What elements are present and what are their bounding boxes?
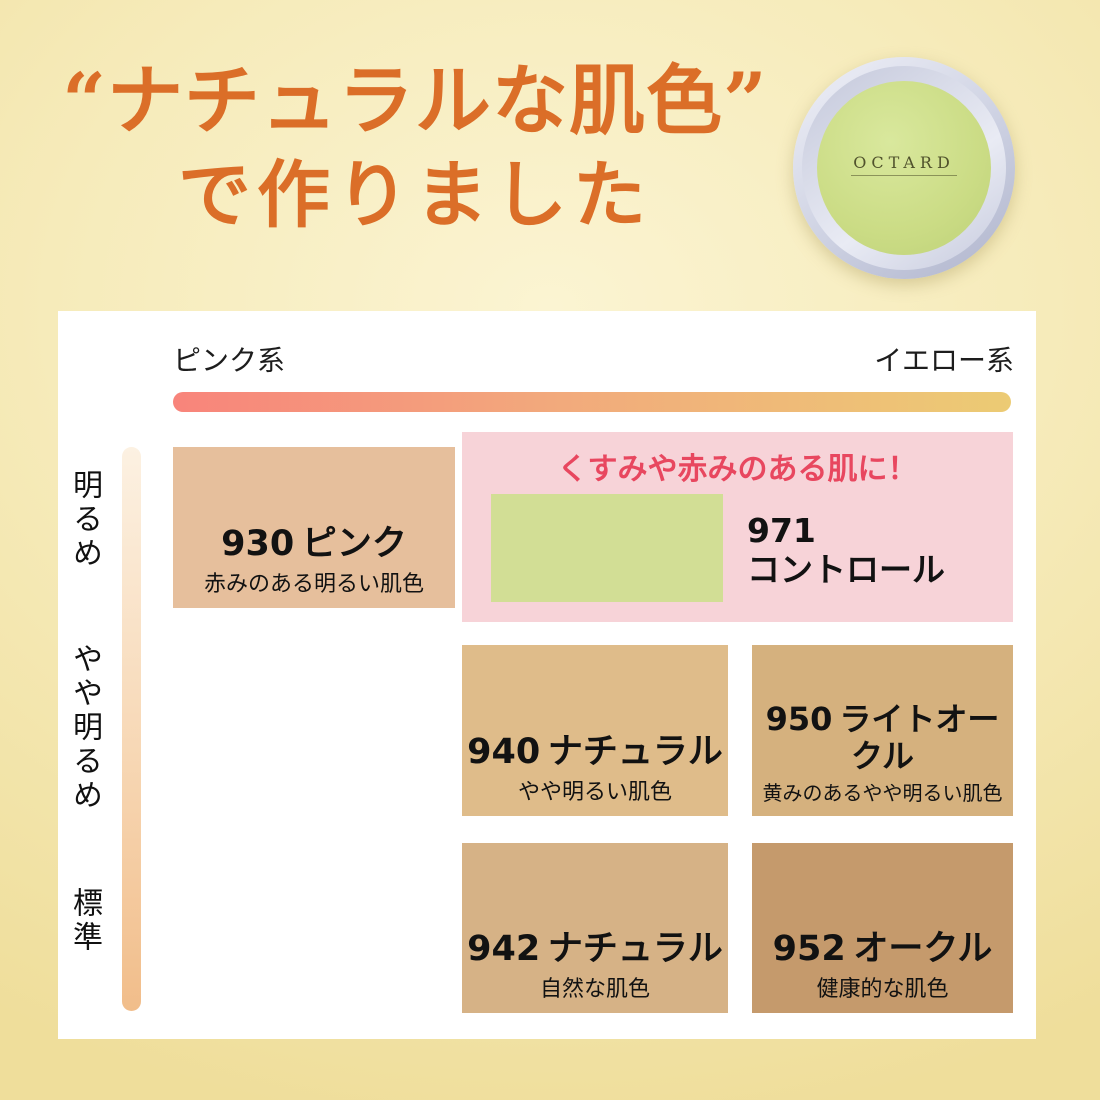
shade-title-940: 940ナチュラル: [467, 732, 723, 772]
shade-card-940: 940ナチュラル やや明るい肌色: [462, 645, 728, 816]
shade-name-942: ナチュラル: [548, 929, 723, 969]
shade-name-950: ライトオークル: [839, 700, 999, 775]
y-axis-label-slightly-bright: やや明るめ: [66, 643, 106, 813]
y-axis-label-bright: 明るめ: [66, 469, 106, 571]
shade-code-952: 952: [773, 929, 846, 969]
shade-name-952: オークル: [853, 929, 992, 969]
shade-card-930: 930ピンク 赤みのある明るい肌色: [173, 447, 455, 608]
shade-title-952: 952オークル: [773, 929, 993, 969]
shade-code-940: 940: [467, 732, 540, 772]
shade-chart-panel: ピンク系 イエロー系 明るめ やや明るめ 標準 930ピンク 赤みのある明るい肌…: [58, 311, 1036, 1039]
shade-desc-942: 自然な肌色: [540, 971, 650, 1003]
page-title: “ナチュラルな肌色” で作りました: [30, 58, 800, 237]
shade-title-950: 950ライトオークル: [752, 701, 1013, 775]
shade-name-971: コントロール: [747, 551, 945, 590]
highlight-box-971: くすみや赤みのある肌に！ 971 コントロール: [462, 432, 1013, 622]
shade-code-950: 950: [766, 700, 833, 738]
page-title-line2: で作りました: [30, 155, 800, 237]
x-axis-gradient-bar: [173, 392, 1011, 412]
shade-title-930: 930ピンク: [221, 524, 407, 564]
page-title-line1: “ナチュラルな肌色”: [30, 58, 800, 143]
brand-logo: OCTARD: [851, 153, 957, 176]
x-axis-label-pink: ピンク系: [173, 339, 285, 379]
shade-code-942: 942: [467, 929, 540, 969]
shade-card-952: 952オークル 健康的な肌色: [752, 843, 1013, 1013]
highlight-caption: くすみや赤みのある肌に！: [462, 444, 1013, 488]
shade-code-930: 930: [221, 524, 294, 564]
shade-code-971: 971: [747, 512, 945, 551]
shade-swatch-971: [491, 494, 723, 602]
product-compact-image: OCTARD: [793, 57, 1015, 279]
shade-desc-940: やや明るい肌色: [518, 774, 672, 806]
shade-card-942: 942ナチュラル 自然な肌色: [462, 843, 728, 1013]
shade-title-942: 942ナチュラル: [467, 929, 723, 969]
shade-title-971: 971 コントロール: [747, 512, 945, 590]
shade-desc-930: 赤みのある明るい肌色: [204, 566, 424, 598]
shade-desc-952: 健康的な肌色: [816, 971, 948, 1003]
y-axis-gradient-bar: [122, 447, 141, 1011]
shade-name-930: ピンク: [302, 524, 407, 564]
shade-card-950: 950ライトオークル 黄みのあるやや明るい肌色: [752, 645, 1013, 816]
y-axis-label-standard: 標準: [66, 887, 106, 955]
shade-name-940: ナチュラル: [548, 732, 723, 772]
shade-desc-950: 黄みのあるやや明るい肌色: [763, 777, 1003, 806]
x-axis-label-yellow: イエロー系: [874, 339, 1014, 379]
compact-powder-face: OCTARD: [817, 81, 991, 255]
